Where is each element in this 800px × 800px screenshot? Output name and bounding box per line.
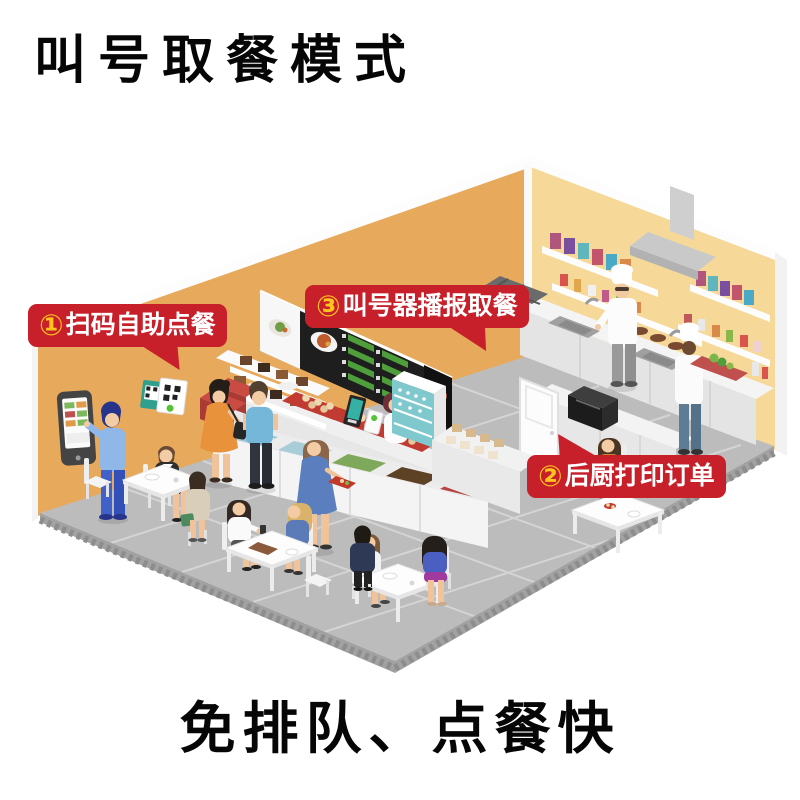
annotation-step1: ① 扫码自助点餐 xyxy=(28,304,227,347)
poster: 叫号取餐模式 xyxy=(0,0,800,800)
bubble-tail-down xyxy=(448,326,491,351)
page-title: 叫号取餐模式 xyxy=(34,18,418,93)
bubble-tail-down xyxy=(140,345,184,370)
restaurant-illustration xyxy=(0,128,800,678)
step2-number: ② xyxy=(538,460,563,493)
step3-label: 叫号器播报取餐 xyxy=(343,292,518,321)
step1-label: 扫码自助点餐 xyxy=(66,311,216,340)
step3-number: ③ xyxy=(316,290,341,323)
step2-label: 后厨打印订单 xyxy=(565,462,715,491)
isometric-scene xyxy=(0,128,800,678)
annotation-step2: ② 后厨打印订单 xyxy=(527,455,726,498)
annotation-step3: ③ 叫号器播报取餐 xyxy=(305,285,529,328)
slogan: 免排队、点餐快 xyxy=(180,684,621,765)
bubble-tail-up xyxy=(554,434,598,457)
step1-number: ① xyxy=(39,309,64,342)
